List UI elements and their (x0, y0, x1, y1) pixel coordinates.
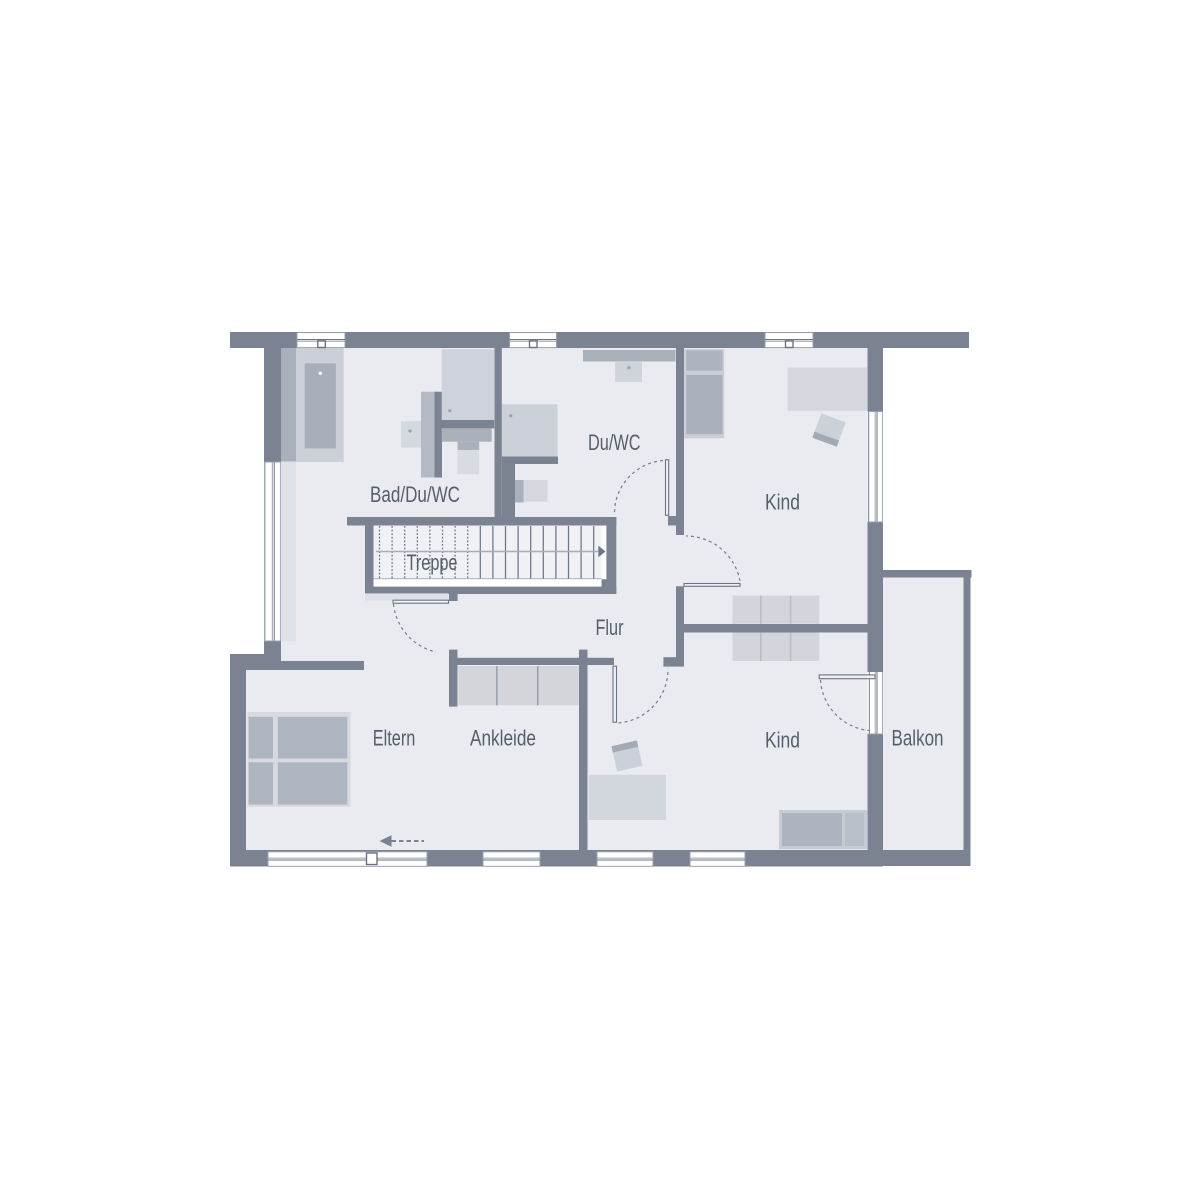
svg-text:Ankleide: Ankleide (470, 726, 536, 751)
svg-text:Du/WC: Du/WC (588, 430, 641, 455)
svg-text:Kind: Kind (765, 728, 800, 753)
svg-text:Eltern: Eltern (373, 726, 416, 751)
svg-text:Bad/Du/WC: Bad/Du/WC (370, 482, 460, 507)
svg-text:Flur: Flur (596, 615, 624, 640)
svg-text:Treppe: Treppe (407, 550, 458, 575)
svg-text:Kind: Kind (765, 490, 800, 515)
svg-text:Balkon: Balkon (892, 726, 944, 751)
